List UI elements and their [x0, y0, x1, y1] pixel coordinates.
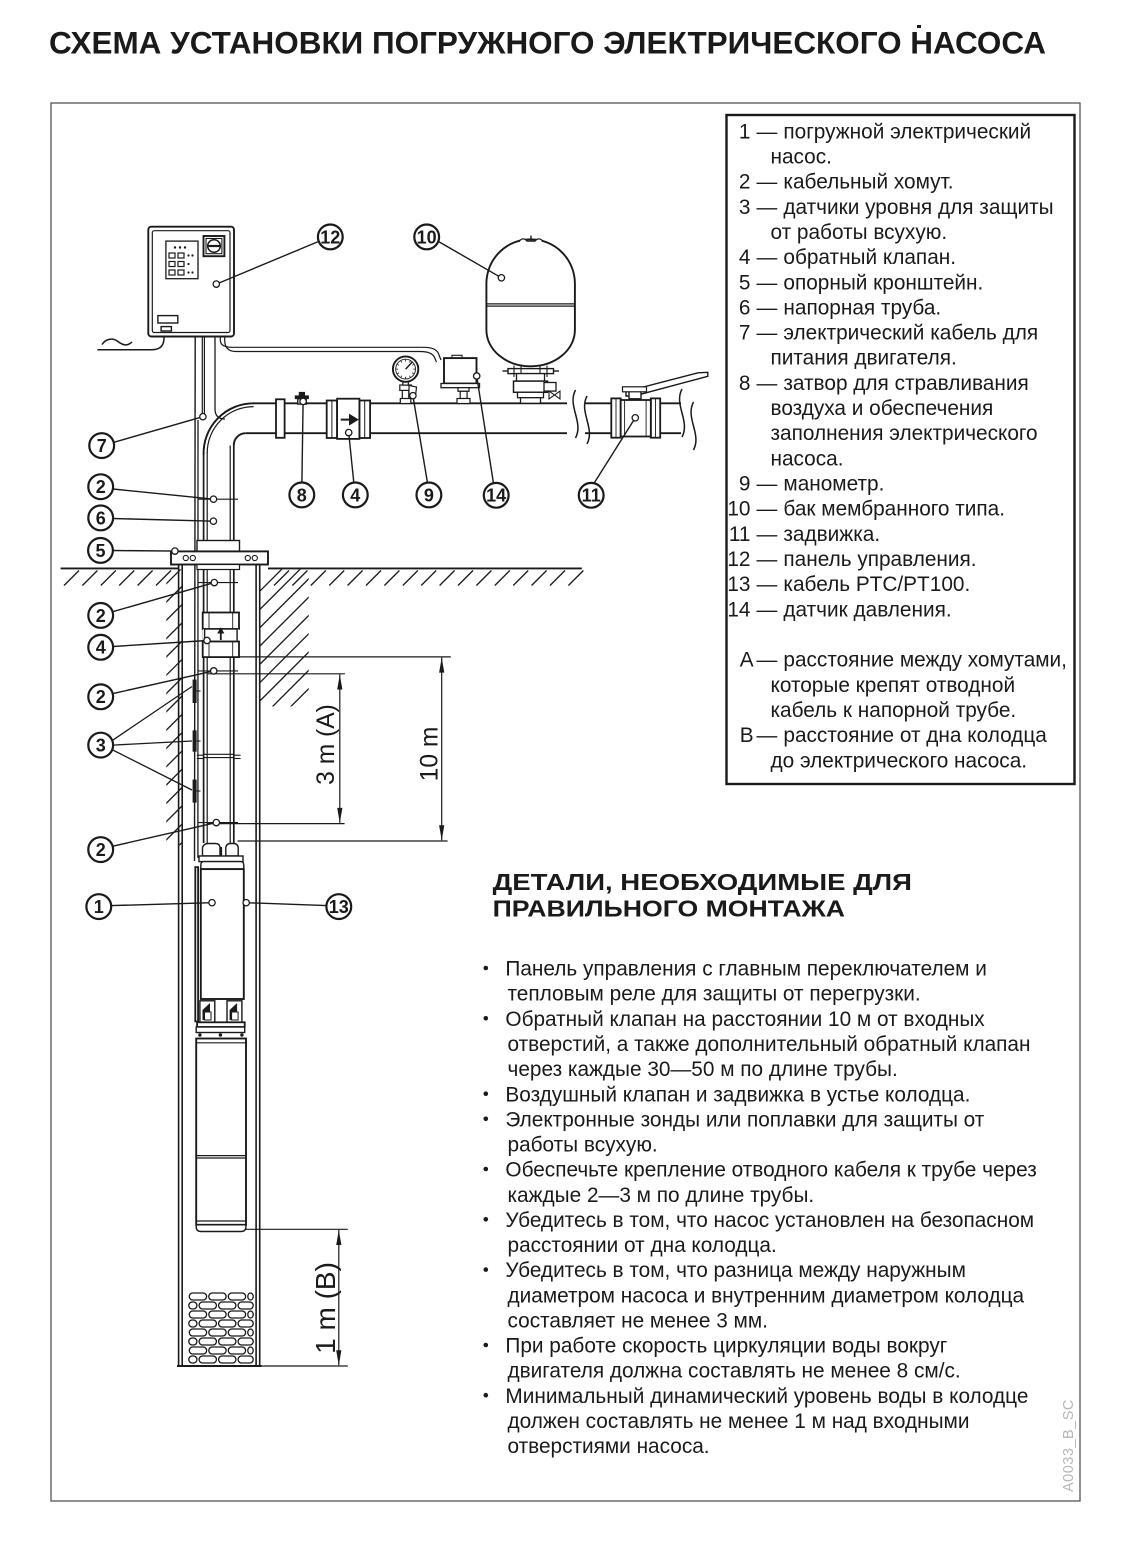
svg-text:—: —	[757, 548, 778, 571]
svg-text:13: 13	[727, 573, 750, 596]
svg-text:воздуха и обеспечения: воздуха и обеспечения	[771, 397, 994, 420]
svg-text:погружной электрический: погружной электрический	[783, 120, 1031, 143]
svg-text:Минимальный динамический урове: Минимальный динамический уровень воды в …	[505, 1385, 1028, 1408]
svg-text:которые крепят отводной: которые крепят отводной	[771, 674, 1016, 697]
svg-text:9: 9	[424, 485, 434, 505]
svg-text:кабель PTC/PT100.: кабель PTC/PT100.	[783, 573, 970, 596]
svg-text:—: —	[757, 322, 778, 345]
svg-text:Электронные зонды или поплавки: Электронные зонды или поплавки для защит…	[505, 1108, 984, 1131]
svg-text:питания двигателя.: питания двигателя.	[771, 347, 957, 370]
svg-text:В: В	[740, 724, 754, 747]
svg-text:7: 7	[739, 322, 751, 345]
svg-text:через каждые 30—50 м по длине: через каждые 30—50 м по длине трубы.	[508, 1058, 898, 1081]
svg-text:затвор для стравливания: затвор для стравливания	[783, 372, 1028, 395]
svg-text:работы всухую.: работы всухую.	[508, 1134, 658, 1157]
svg-text:—: —	[757, 473, 778, 496]
svg-text:7: 7	[97, 436, 107, 456]
svg-text:до электрического насоса.: до электрического насоса.	[771, 749, 1028, 772]
svg-text:Обратный клапан на расстоянии: Обратный клапан на расстоянии 10 м от вх…	[505, 1008, 985, 1031]
svg-text:ПРАВИЛЬНОГО МОНТАЖА: ПРАВИЛЬНОГО МОНТАЖА	[493, 896, 845, 922]
svg-text:бак мембранного типа.: бак мембранного типа.	[783, 498, 1005, 521]
svg-text:9: 9	[739, 473, 751, 496]
svg-text:насос.: насос.	[771, 146, 832, 169]
svg-text:14: 14	[486, 486, 506, 506]
svg-text:3 m (A): 3 m (A)	[313, 704, 340, 785]
svg-text:составляет не менее 3 мм.: составляет не менее 3 мм.	[508, 1309, 768, 1332]
svg-text:8: 8	[739, 372, 751, 395]
svg-text:каждые 2—3 м по длине трубы.: каждые 2—3 м по длине трубы.	[508, 1184, 815, 1207]
svg-text:10: 10	[417, 227, 437, 247]
svg-text:манометр.: манометр.	[783, 473, 884, 496]
svg-text:отверстий, а также дополнитель: отверстий, а также дополнительный обратн…	[508, 1033, 1031, 1056]
svg-text:насоса.: насоса.	[771, 447, 844, 470]
svg-text:При работе скорость циркуляции: При работе скорость циркуляции воды вокр…	[505, 1335, 947, 1358]
svg-text:12: 12	[727, 548, 750, 571]
svg-text:—: —	[757, 271, 778, 294]
svg-text:11: 11	[582, 486, 601, 506]
svg-text:Панель управления с главным пе: Панель управления с главным переключател…	[505, 958, 986, 981]
svg-text:ДЕТАЛИ, НЕОБХОДИМЫЕ ДЛЯ: ДЕТАЛИ, НЕОБХОДИМЫЕ ДЛЯ	[493, 869, 912, 895]
svg-text:заполнения электрического: заполнения электрического	[771, 422, 1038, 445]
svg-text:напорная труба.: напорная труба.	[783, 296, 941, 319]
svg-text:—: —	[757, 523, 778, 546]
svg-text:—: —	[757, 598, 778, 621]
svg-text:—: —	[757, 724, 778, 747]
svg-text:Обеспечьте крепление отводного: Обеспечьте крепление отводного кабеля к …	[505, 1159, 1036, 1182]
svg-text:4: 4	[350, 485, 360, 505]
svg-text:расстоянии от дна колодца.: расстоянии от дна колодца.	[508, 1234, 777, 1257]
svg-text:датчики уровня для защиты: датчики уровня для защиты	[783, 196, 1053, 219]
svg-text:—: —	[757, 196, 778, 219]
svg-text:11: 11	[729, 523, 751, 546]
svg-text:—: —	[757, 120, 778, 143]
svg-text:—: —	[757, 296, 778, 319]
svg-text:12: 12	[320, 227, 340, 247]
svg-text:3: 3	[96, 736, 106, 756]
svg-text:кабельный хомут.: кабельный хомут.	[783, 171, 953, 194]
svg-text:опорный кронштейн.: опорный кронштейн.	[783, 271, 983, 294]
svg-text:3: 3	[739, 196, 751, 219]
svg-text:10 m: 10 m	[417, 727, 444, 782]
svg-text:14: 14	[727, 598, 750, 621]
svg-text:2: 2	[96, 477, 106, 497]
svg-text:5: 5	[95, 541, 105, 561]
svg-text:2: 2	[739, 171, 751, 194]
svg-text:электрический кабель для: электрический кабель для	[783, 322, 1038, 345]
svg-text:кабель к напорной трубе.: кабель к напорной трубе.	[771, 699, 1017, 722]
svg-text:СХЕМА УСТАНОВКИ ПОГРУЖНОГО ЭЛЕ: СХЕМА УСТАНОВКИ ПОГРУЖНОГО ЭЛЕКТРИЧЕСКОГ…	[49, 26, 1046, 61]
svg-text:двигателя должна составлять не: двигателя должна составлять не менее 8 с…	[508, 1360, 961, 1383]
svg-text:панель управления.: панель управления.	[783, 548, 976, 571]
svg-text:датчик давления.: датчик давления.	[783, 598, 951, 621]
svg-text:1: 1	[739, 120, 751, 143]
svg-text:6: 6	[96, 508, 106, 528]
svg-text:Убедитесь в том, что насос уст: Убедитесь в том, что насос установлен на…	[505, 1209, 1034, 1232]
svg-text:4: 4	[739, 246, 751, 269]
svg-text:5: 5	[739, 271, 751, 294]
svg-text:тепловым реле для защиты от пе: тепловым реле для защиты от перегрузки.	[508, 983, 921, 1006]
svg-text:2: 2	[96, 840, 106, 860]
svg-text:обратный клапан.: обратный клапан.	[783, 246, 956, 269]
svg-text:1: 1	[94, 897, 104, 917]
svg-text:2: 2	[96, 687, 106, 707]
svg-text:—: —	[757, 573, 778, 596]
svg-text:задвижка.: задвижка.	[783, 523, 880, 546]
svg-text:13: 13	[329, 897, 349, 917]
svg-text:должен составлять не менее 1 м: должен составлять не менее 1 м над входн…	[508, 1410, 970, 1433]
svg-text:—: —	[757, 498, 778, 521]
svg-text:10: 10	[727, 498, 750, 521]
svg-text:расстояние между хомутами,: расстояние между хомутами,	[783, 649, 1067, 672]
svg-text:диаметром насоса и внутренним: диаметром насоса и внутренним диаметром …	[508, 1284, 1025, 1307]
svg-text:—: —	[757, 649, 778, 672]
svg-text:2: 2	[96, 606, 106, 626]
svg-text:A0033_B_SC: A0033_B_SC	[1061, 1399, 1077, 1492]
svg-text:Убедитесь в том, что разница м: Убедитесь в том, что разница между наруж…	[505, 1259, 965, 1282]
svg-text:Воздушный клапан и задвижка в: Воздушный клапан и задвижка в устье коло…	[505, 1083, 970, 1106]
svg-text:А: А	[740, 649, 754, 672]
svg-text:—: —	[757, 372, 778, 395]
svg-text:4: 4	[96, 638, 106, 658]
svg-text:—: —	[757, 171, 778, 194]
svg-text:от работы всухую.: от работы всухую.	[771, 221, 948, 244]
svg-text:6: 6	[739, 296, 751, 319]
svg-text:отверстиями насоса.: отверстиями насоса.	[508, 1435, 710, 1458]
svg-text:расстояние от дна колодца: расстояние от дна колодца	[783, 724, 1047, 747]
svg-text:—: —	[757, 246, 778, 269]
svg-text:1 m (B): 1 m (B)	[310, 1262, 341, 1354]
svg-text:8: 8	[297, 485, 307, 505]
